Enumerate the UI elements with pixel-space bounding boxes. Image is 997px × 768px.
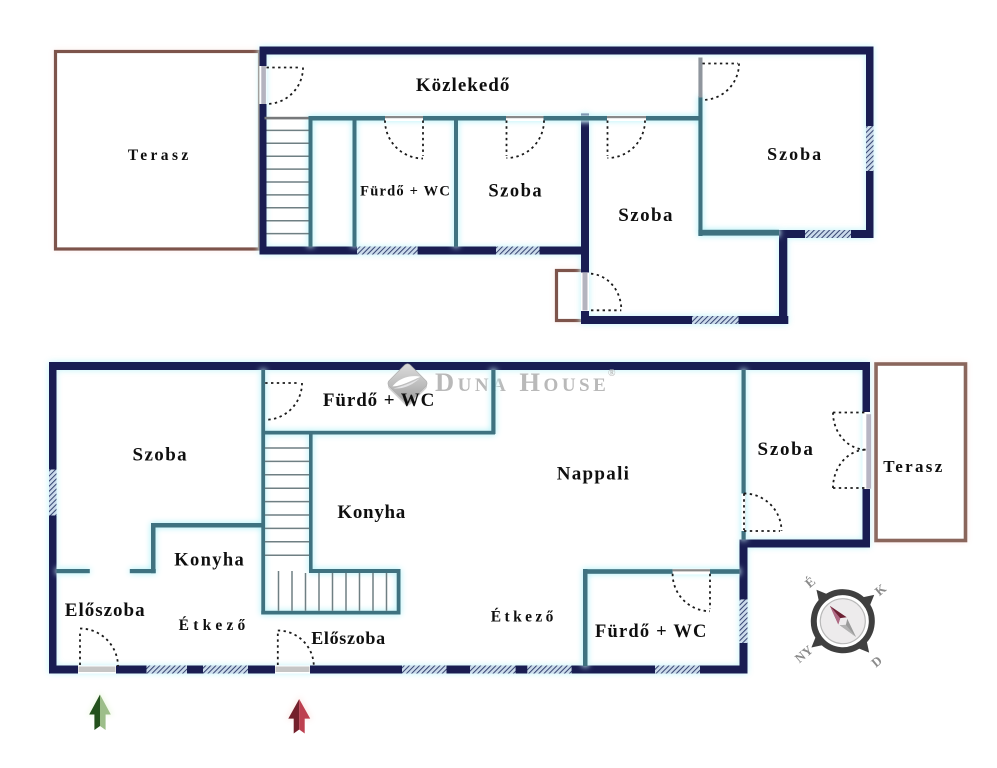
svg-text:Szoba: Szoba	[618, 205, 674, 226]
svg-text:®: ®	[608, 368, 616, 379]
svg-text:Duna House: Duna House	[435, 367, 609, 397]
svg-text:Terasz: Terasz	[128, 147, 192, 164]
svg-text:Szoba: Szoba	[758, 439, 815, 460]
svg-text:Fürdő + WC: Fürdő + WC	[595, 622, 708, 642]
svg-text:Konyha: Konyha	[337, 502, 406, 523]
svg-text:Konyha: Konyha	[174, 550, 245, 570]
svg-text:Előszoba: Előszoba	[311, 628, 386, 648]
svg-text:Étkező: Étkező	[179, 617, 250, 634]
svg-text:Közlekedő: Közlekedő	[416, 75, 511, 96]
svg-text:Előszoba: Előszoba	[65, 600, 146, 621]
svg-text:Fürdő + WC: Fürdő + WC	[360, 184, 451, 200]
svg-text:Szoba: Szoba	[488, 182, 543, 202]
svg-text:Étkező: Étkező	[491, 609, 557, 626]
svg-text:Nappali: Nappali	[557, 464, 631, 485]
svg-text:Terasz: Terasz	[883, 457, 944, 476]
svg-text:Szoba: Szoba	[133, 445, 189, 466]
svg-text:Fürdő + WC: Fürdő + WC	[323, 390, 435, 411]
svg-text:Szoba: Szoba	[767, 144, 823, 164]
